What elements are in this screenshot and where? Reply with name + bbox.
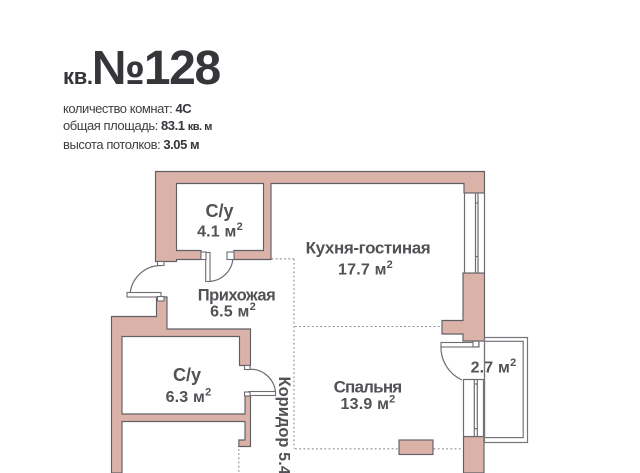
- svg-text:2.7 м2: 2.7 м2: [471, 357, 517, 377]
- svg-text:Кухня-гостиная: Кухня-гостиная: [306, 239, 431, 258]
- svg-text:С/у: С/у: [205, 201, 233, 221]
- svg-text:С/у: С/у: [173, 365, 201, 385]
- svg-text:6.5 м2: 6.5 м2: [210, 301, 256, 321]
- svg-text:Прихожая: Прихожая: [198, 287, 275, 305]
- svg-text:4.1 м2: 4.1 м2: [197, 221, 243, 241]
- svg-text:13.9 м2: 13.9 м2: [341, 394, 396, 414]
- svg-text:Коридор 5.4 м2: Коридор 5.4 м2: [275, 377, 295, 473]
- svg-text:6.3 м2: 6.3 м2: [166, 387, 212, 407]
- svg-text:17.7 м2: 17.7 м2: [338, 259, 393, 279]
